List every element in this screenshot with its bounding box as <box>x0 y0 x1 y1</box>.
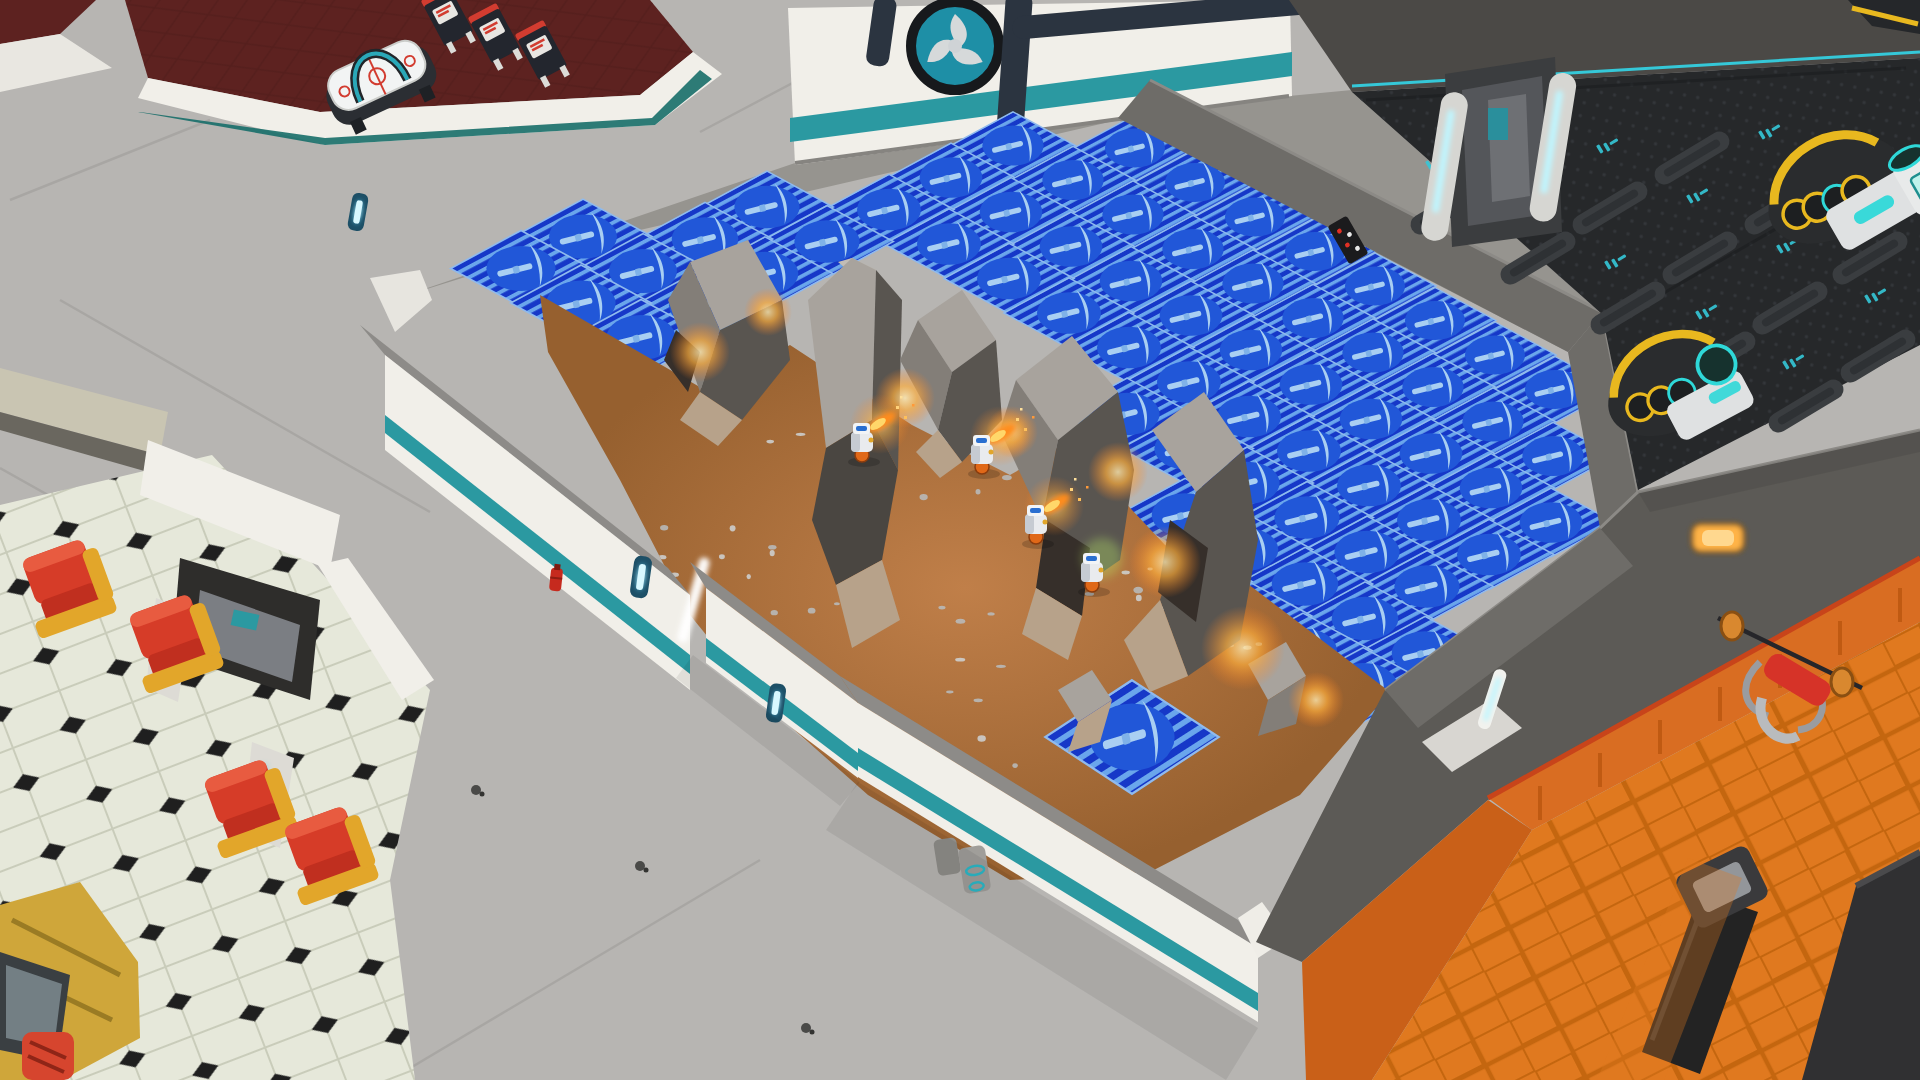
lamp-core <box>1702 530 1734 546</box>
game-viewport <box>0 0 1920 1080</box>
scene-canvas <box>0 0 1920 1080</box>
ore-glow <box>1088 442 1148 502</box>
ore-glow <box>744 288 792 336</box>
ore-glow <box>1129 526 1201 598</box>
turbine-emblem <box>911 2 999 90</box>
ore-glow <box>1201 606 1285 690</box>
ore-glow <box>1288 672 1344 728</box>
ore-glow <box>670 322 730 382</box>
